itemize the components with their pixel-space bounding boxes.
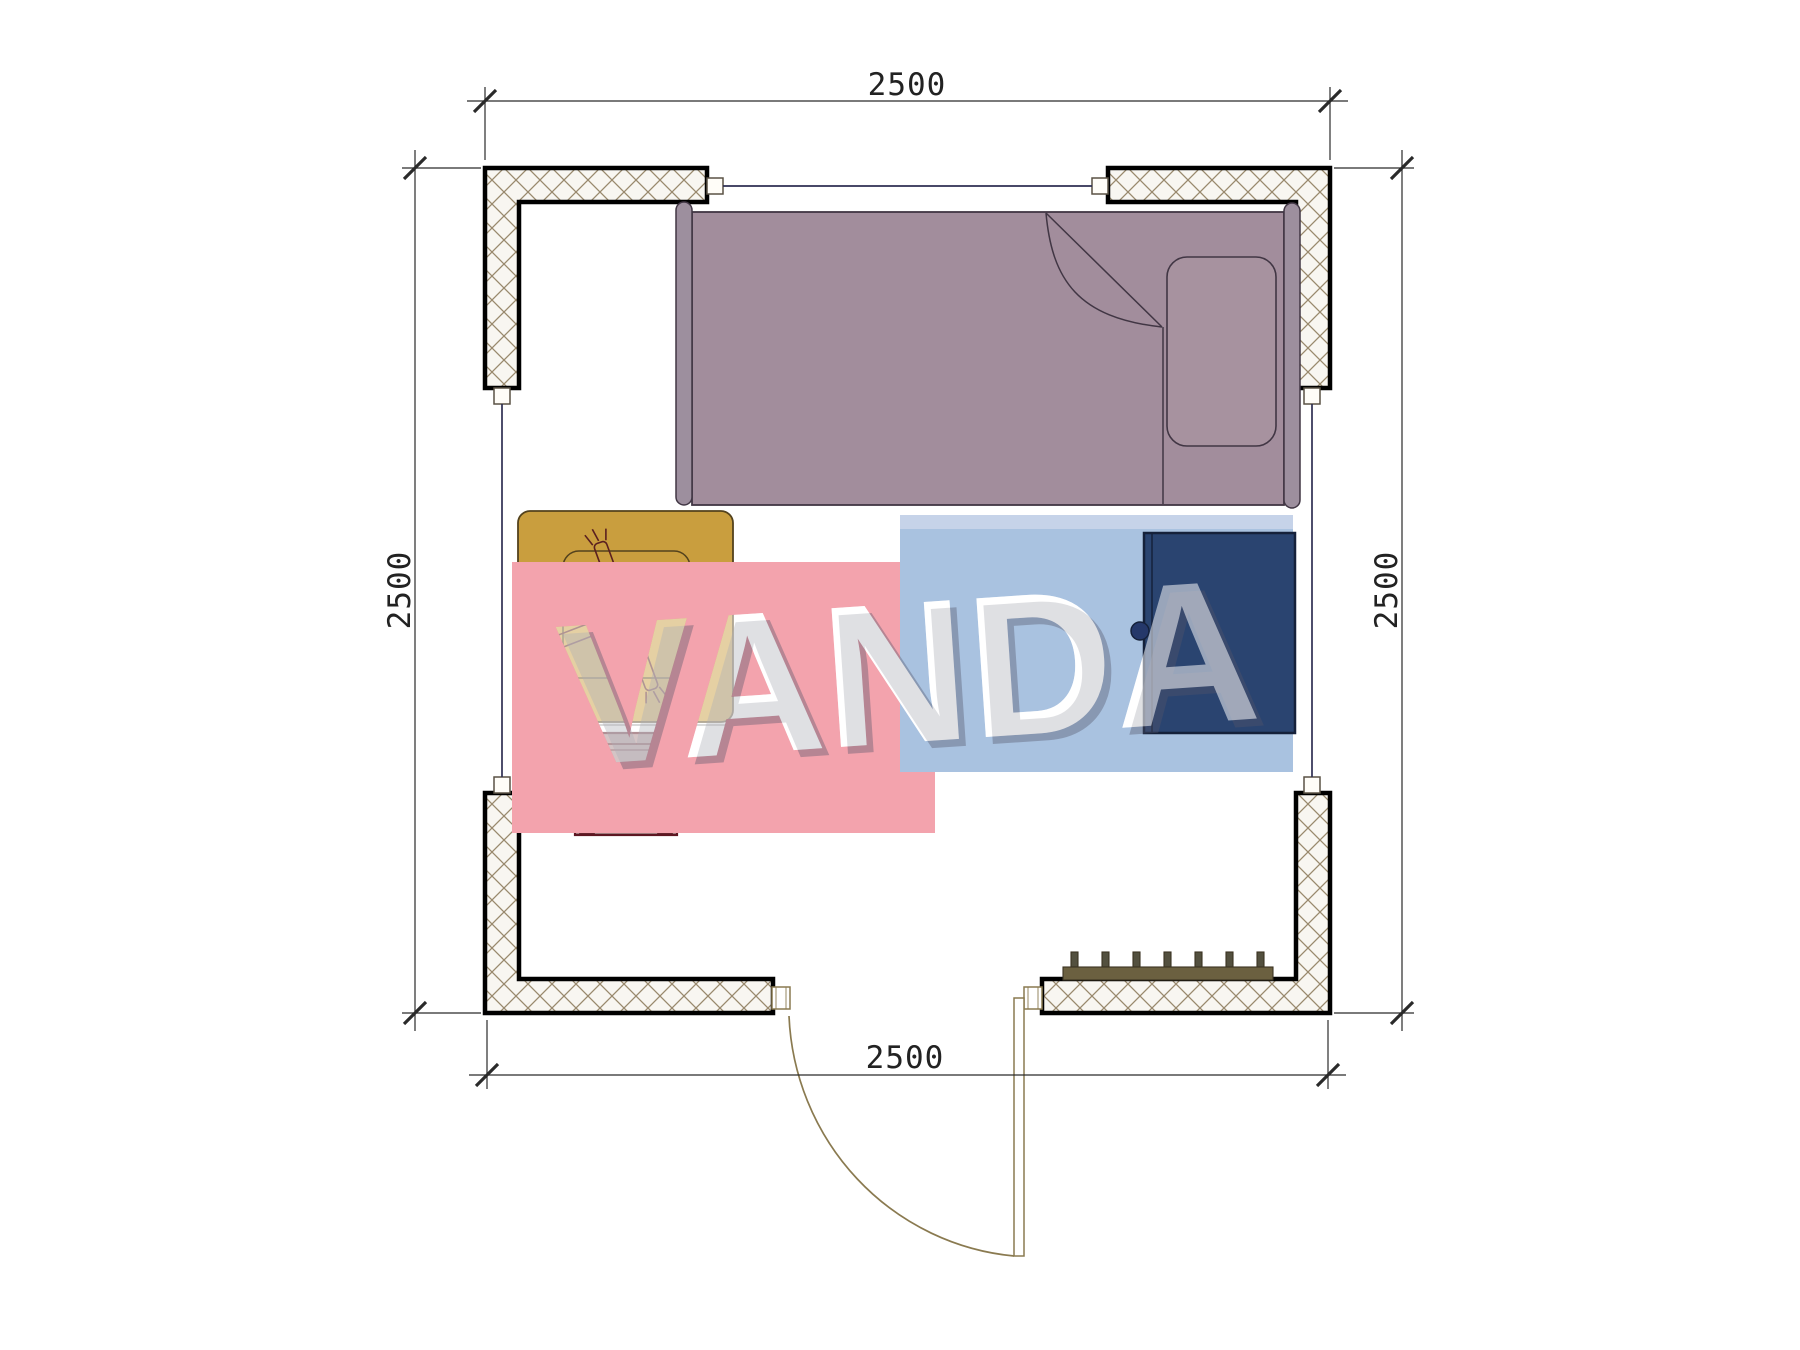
left-dimension-label: 2500: [382, 551, 418, 630]
radiator-fin: [1071, 952, 1078, 967]
wall-top-left: [485, 168, 707, 388]
radiator-fin: [1102, 952, 1109, 967]
radiator: [1063, 952, 1273, 980]
radiator-fin: [1257, 952, 1264, 967]
window-connector: [1092, 178, 1108, 194]
watermark-blue-top-strip: [900, 515, 1293, 529]
window-connector: [1304, 777, 1320, 793]
radiator-fin: [1133, 952, 1140, 967]
floor-plan-drawing: VANDA: [0, 0, 1800, 1350]
door-jamb-left: [772, 987, 790, 1009]
door-swing: [772, 987, 1042, 1256]
single-bed: [676, 202, 1300, 508]
window-connector: [494, 388, 510, 404]
door-jamb-right: [1024, 987, 1042, 1009]
window-connector: [494, 777, 510, 793]
pillow: [1167, 257, 1276, 446]
radiator-body: [1063, 967, 1273, 980]
door-leaf: [1014, 998, 1024, 1256]
window-connector: [707, 178, 723, 194]
bed-footboard: [1284, 203, 1300, 508]
top-dimension-label: 2500: [868, 67, 947, 103]
watermark-text-main: [551, 536, 1265, 809]
window-connector: [1304, 388, 1320, 404]
floor-plan-page: VANDA: [0, 0, 1800, 1350]
right-dimension-label: 2500: [1369, 551, 1405, 630]
radiator-fin: [1195, 952, 1202, 967]
radiator-fin: [1164, 952, 1171, 967]
radiator-fin: [1226, 952, 1233, 967]
bed-headboard: [676, 202, 692, 505]
bottom-dimension-label: 2500: [866, 1040, 945, 1076]
